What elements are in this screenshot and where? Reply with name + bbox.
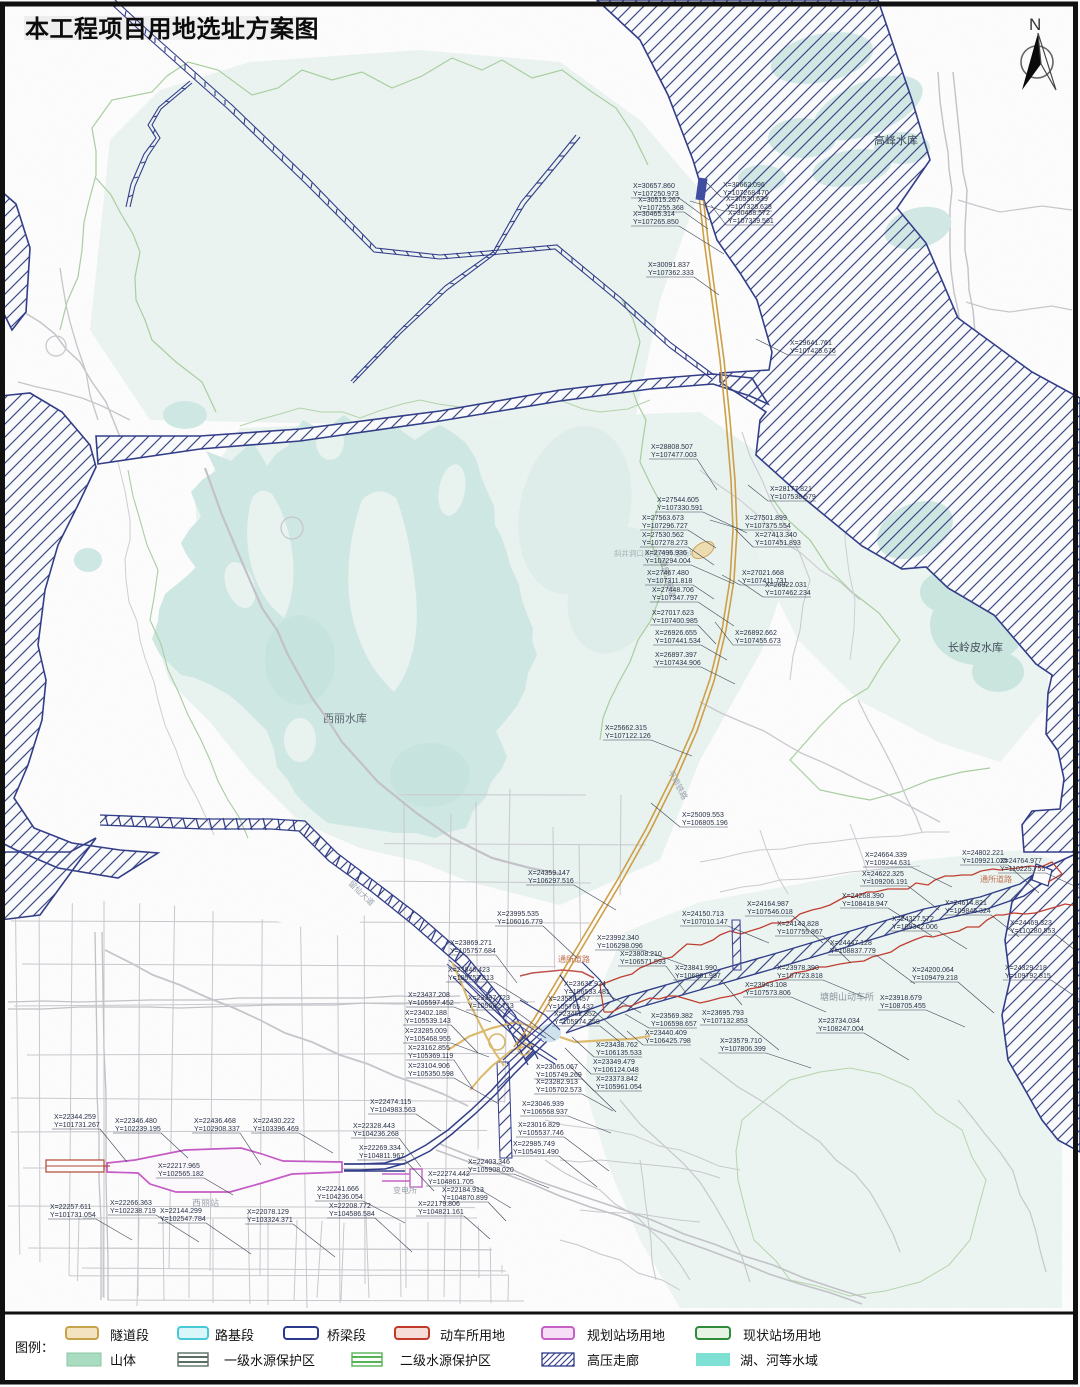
svg-text:隧道段: 隧道段 xyxy=(110,1328,149,1343)
svg-text:动车所用地: 动车所用地 xyxy=(440,1328,505,1343)
svg-text:图例：: 图例： xyxy=(15,1340,54,1355)
svg-text:现状站场用地: 现状站场用地 xyxy=(743,1328,821,1343)
svg-text:路基段: 路基段 xyxy=(215,1328,254,1343)
svg-text:本工程项目用地选址方案图: 本工程项目用地选址方案图 xyxy=(25,15,319,43)
svg-text:高压走廊: 高压走廊 xyxy=(587,1353,639,1368)
svg-text:山体: 山体 xyxy=(110,1353,136,1368)
svg-text:桥梁段: 桥梁段 xyxy=(327,1328,366,1343)
svg-text:二级水源保护区: 二级水源保护区 xyxy=(400,1353,491,1368)
svg-text:一级水源保护区: 一级水源保护区 xyxy=(224,1353,315,1368)
svg-text:湖、河等水域: 湖、河等水域 xyxy=(740,1353,818,1368)
svg-text:规划站场用地: 规划站场用地 xyxy=(587,1328,665,1343)
svg-text:N: N xyxy=(1029,15,1041,34)
